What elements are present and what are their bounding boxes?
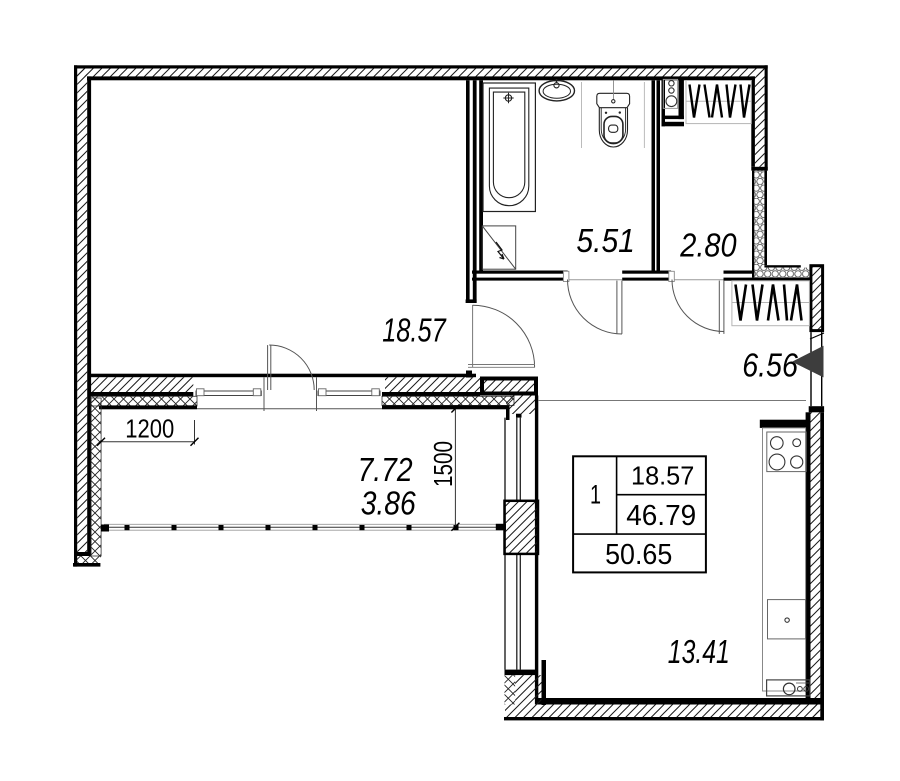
svg-text:7.72: 7.72	[358, 451, 413, 488]
svg-text:18.57: 18.57	[631, 460, 694, 490]
svg-text:50.65: 50.65	[605, 539, 672, 571]
svg-text:18.57: 18.57	[382, 312, 447, 349]
svg-text:1: 1	[590, 480, 601, 510]
svg-text:6.56: 6.56	[742, 347, 798, 384]
svg-text:1200: 1200	[125, 414, 174, 444]
svg-text:2.80: 2.80	[679, 226, 737, 263]
svg-text:5.51: 5.51	[576, 222, 635, 259]
svg-text:13.41: 13.41	[668, 633, 730, 670]
svg-text:46.79: 46.79	[626, 500, 696, 532]
svg-text:3.86: 3.86	[361, 485, 417, 522]
svg-text:1500: 1500	[428, 441, 458, 487]
